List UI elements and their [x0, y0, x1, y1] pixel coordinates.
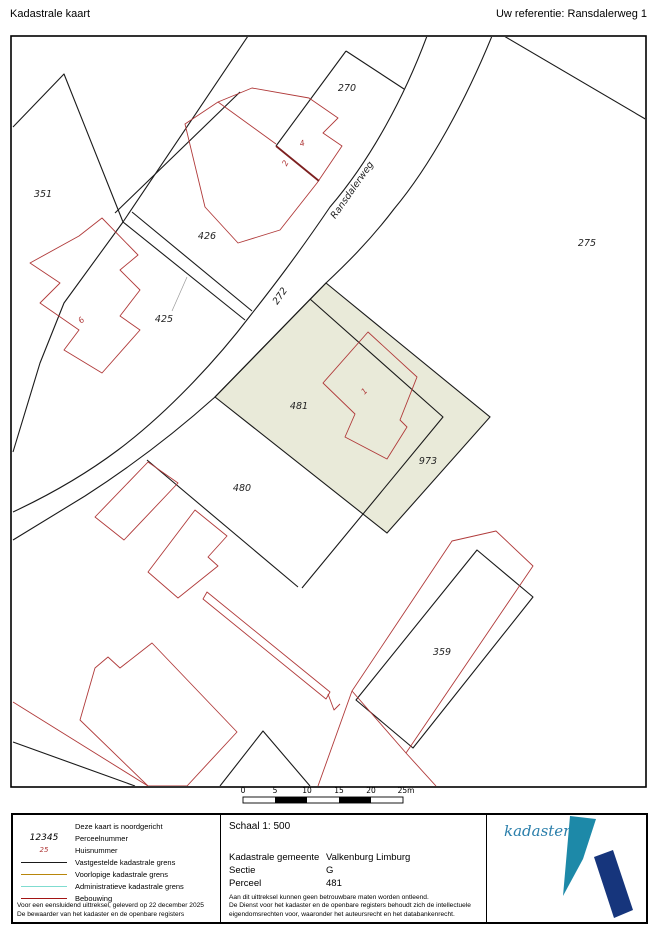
logo-column: kadaster	[487, 815, 646, 922]
legend-row-vastgestelde-grens: Vastgestelde kadastrale grens	[13, 856, 220, 868]
parcel-label-359: 359	[433, 647, 451, 658]
detail-value: G	[326, 864, 333, 877]
legend-line-swatch-gold	[21, 874, 67, 875]
footnote-line: Aan dit uittreksel kunnen geen betrouwba…	[229, 894, 484, 903]
building-outline	[328, 694, 340, 710]
legend-sample-parcelnumber: 12345	[13, 833, 75, 843]
detail-label: Sectie	[229, 864, 326, 877]
footnote-line: Voor een eensluidend uittreksel, gelever…	[17, 902, 218, 911]
legend-row-huisnummer: 25 Huisnummer	[13, 844, 220, 856]
cadastral-map: 270 351 426 425 275 272 481 973 480 359 …	[0, 0, 657, 935]
building-outline	[95, 462, 178, 540]
legend-label: Deze kaart is noordgericht	[75, 822, 163, 831]
scale-tick: 0	[241, 786, 246, 795]
parcel-boundary	[220, 731, 310, 786]
scale-tick: 20	[366, 786, 376, 795]
detail-value: Valkenburg Limburg	[326, 851, 410, 864]
footnote-line: De bewaarder van het kadaster en de open…	[17, 911, 218, 920]
parcel-label-973: 973	[419, 456, 437, 467]
parcel-boundary	[13, 222, 123, 452]
building-outline	[203, 592, 330, 699]
legend-label: Administratieve kadastrale grens	[75, 882, 184, 891]
detail-value: 481	[326, 877, 342, 890]
parcel-label-270: 270	[338, 83, 356, 94]
street-label-ransdalerweg: Ransdalerweg	[329, 160, 377, 221]
legend-line-swatch-cyan	[21, 886, 67, 887]
detail-label: Kadastrale gemeente	[229, 851, 326, 864]
legend-line-swatch-black	[21, 862, 67, 863]
page: { "header": { "title": "Kadastrale kaart…	[0, 0, 657, 935]
legend-line-swatch-red	[21, 898, 67, 899]
scale-tick: 5	[273, 786, 278, 795]
parcel-label-425: 425	[155, 314, 173, 325]
legend-label: Voorlopige kadastrale grens	[75, 870, 168, 879]
house-number-4: 4	[299, 138, 306, 148]
building-outline	[406, 753, 436, 786]
footnote-line: De Dienst voor het kadaster en de openba…	[229, 902, 484, 911]
detail-row-sectie: Sectie G	[229, 864, 410, 877]
building-outline-house-2-4	[185, 88, 342, 243]
detail-row-gemeente: Kadastrale gemeente Valkenburg Limburg	[229, 851, 410, 864]
legend-label: Perceelnummer	[75, 834, 128, 843]
parcel-details: Kadastrale gemeente Valkenburg Limburg S…	[229, 851, 410, 890]
parcel-boundary	[123, 222, 245, 320]
building-outline	[318, 691, 352, 786]
highlight-parcel-481	[215, 283, 490, 533]
parcel-boundary	[504, 36, 647, 120]
scale-tick: 25m	[398, 786, 415, 795]
parcel-label-480: 480	[233, 483, 251, 494]
scale-bar-segment	[275, 797, 307, 803]
parcel-label-481: 481	[290, 401, 308, 412]
parcel-boundary	[132, 212, 252, 311]
scale-tick: 10	[302, 786, 312, 795]
legend-row-administratieve-grens: Administratieve kadastrale grens	[13, 880, 220, 892]
legend-column: Deze kaart is noordgericht 12345 Perceel…	[13, 815, 221, 922]
legend-row-north: Deze kaart is noordgericht	[13, 820, 220, 832]
building-outline	[80, 643, 237, 786]
house-number-6: 6	[76, 315, 86, 325]
building-outline-house-6	[30, 218, 140, 373]
label-leader-line	[172, 277, 187, 311]
parcel-label-272: 272	[271, 286, 290, 307]
parcel-boundary	[13, 742, 135, 786]
parcel-label-426: 426	[198, 231, 216, 242]
footnote-line: eigendomsrechten voor, waaronder het aut…	[229, 911, 484, 920]
parcel-boundary	[13, 74, 123, 222]
house-number-2: 2	[280, 159, 290, 168]
details-column: Schaal 1: 500 Kadastrale gemeente Valken…	[221, 815, 487, 922]
legend-label: Huisnummer	[75, 846, 118, 855]
kadaster-logo-icon	[487, 815, 642, 919]
parcel-boundary	[276, 51, 346, 146]
scale-text: Schaal 1: 500	[229, 821, 290, 832]
legend-box: Deze kaart is noordgericht 12345 Perceel…	[11, 813, 648, 924]
scale-bar: 0 5 10 15 20 25m	[241, 786, 415, 803]
logo-quill-shape	[563, 816, 596, 896]
scale-tick: 15	[334, 786, 344, 795]
parcel-boundary	[123, 36, 248, 222]
legend-row-voorlopige-grens: Voorlopige kadastrale grens	[13, 868, 220, 880]
footnote-left: Voor een eensluidend uittreksel, gelever…	[17, 902, 218, 919]
legend-sample-housenumber: 25	[13, 846, 75, 854]
detail-label: Perceel	[229, 877, 326, 890]
parcel-boundary	[147, 460, 298, 587]
legend-label: Vastgestelde kadastrale grens	[75, 858, 175, 867]
footnote-right: Aan dit uittreksel kunnen geen betrouwba…	[229, 894, 484, 920]
scale-bar-track	[243, 797, 403, 803]
building-outline	[13, 702, 148, 786]
legend-row-perceelnummer: 12345 Perceelnummer	[13, 832, 220, 844]
scale-bar-segment	[339, 797, 371, 803]
detail-row-perceel: Perceel 481	[229, 877, 410, 890]
building-outline	[148, 510, 227, 598]
parcel-label-275: 275	[578, 238, 596, 249]
logo-bar-shape	[594, 850, 633, 918]
parcel-label-351: 351	[34, 189, 52, 200]
building-outline	[218, 102, 276, 144]
parcel-boundary	[115, 92, 240, 213]
